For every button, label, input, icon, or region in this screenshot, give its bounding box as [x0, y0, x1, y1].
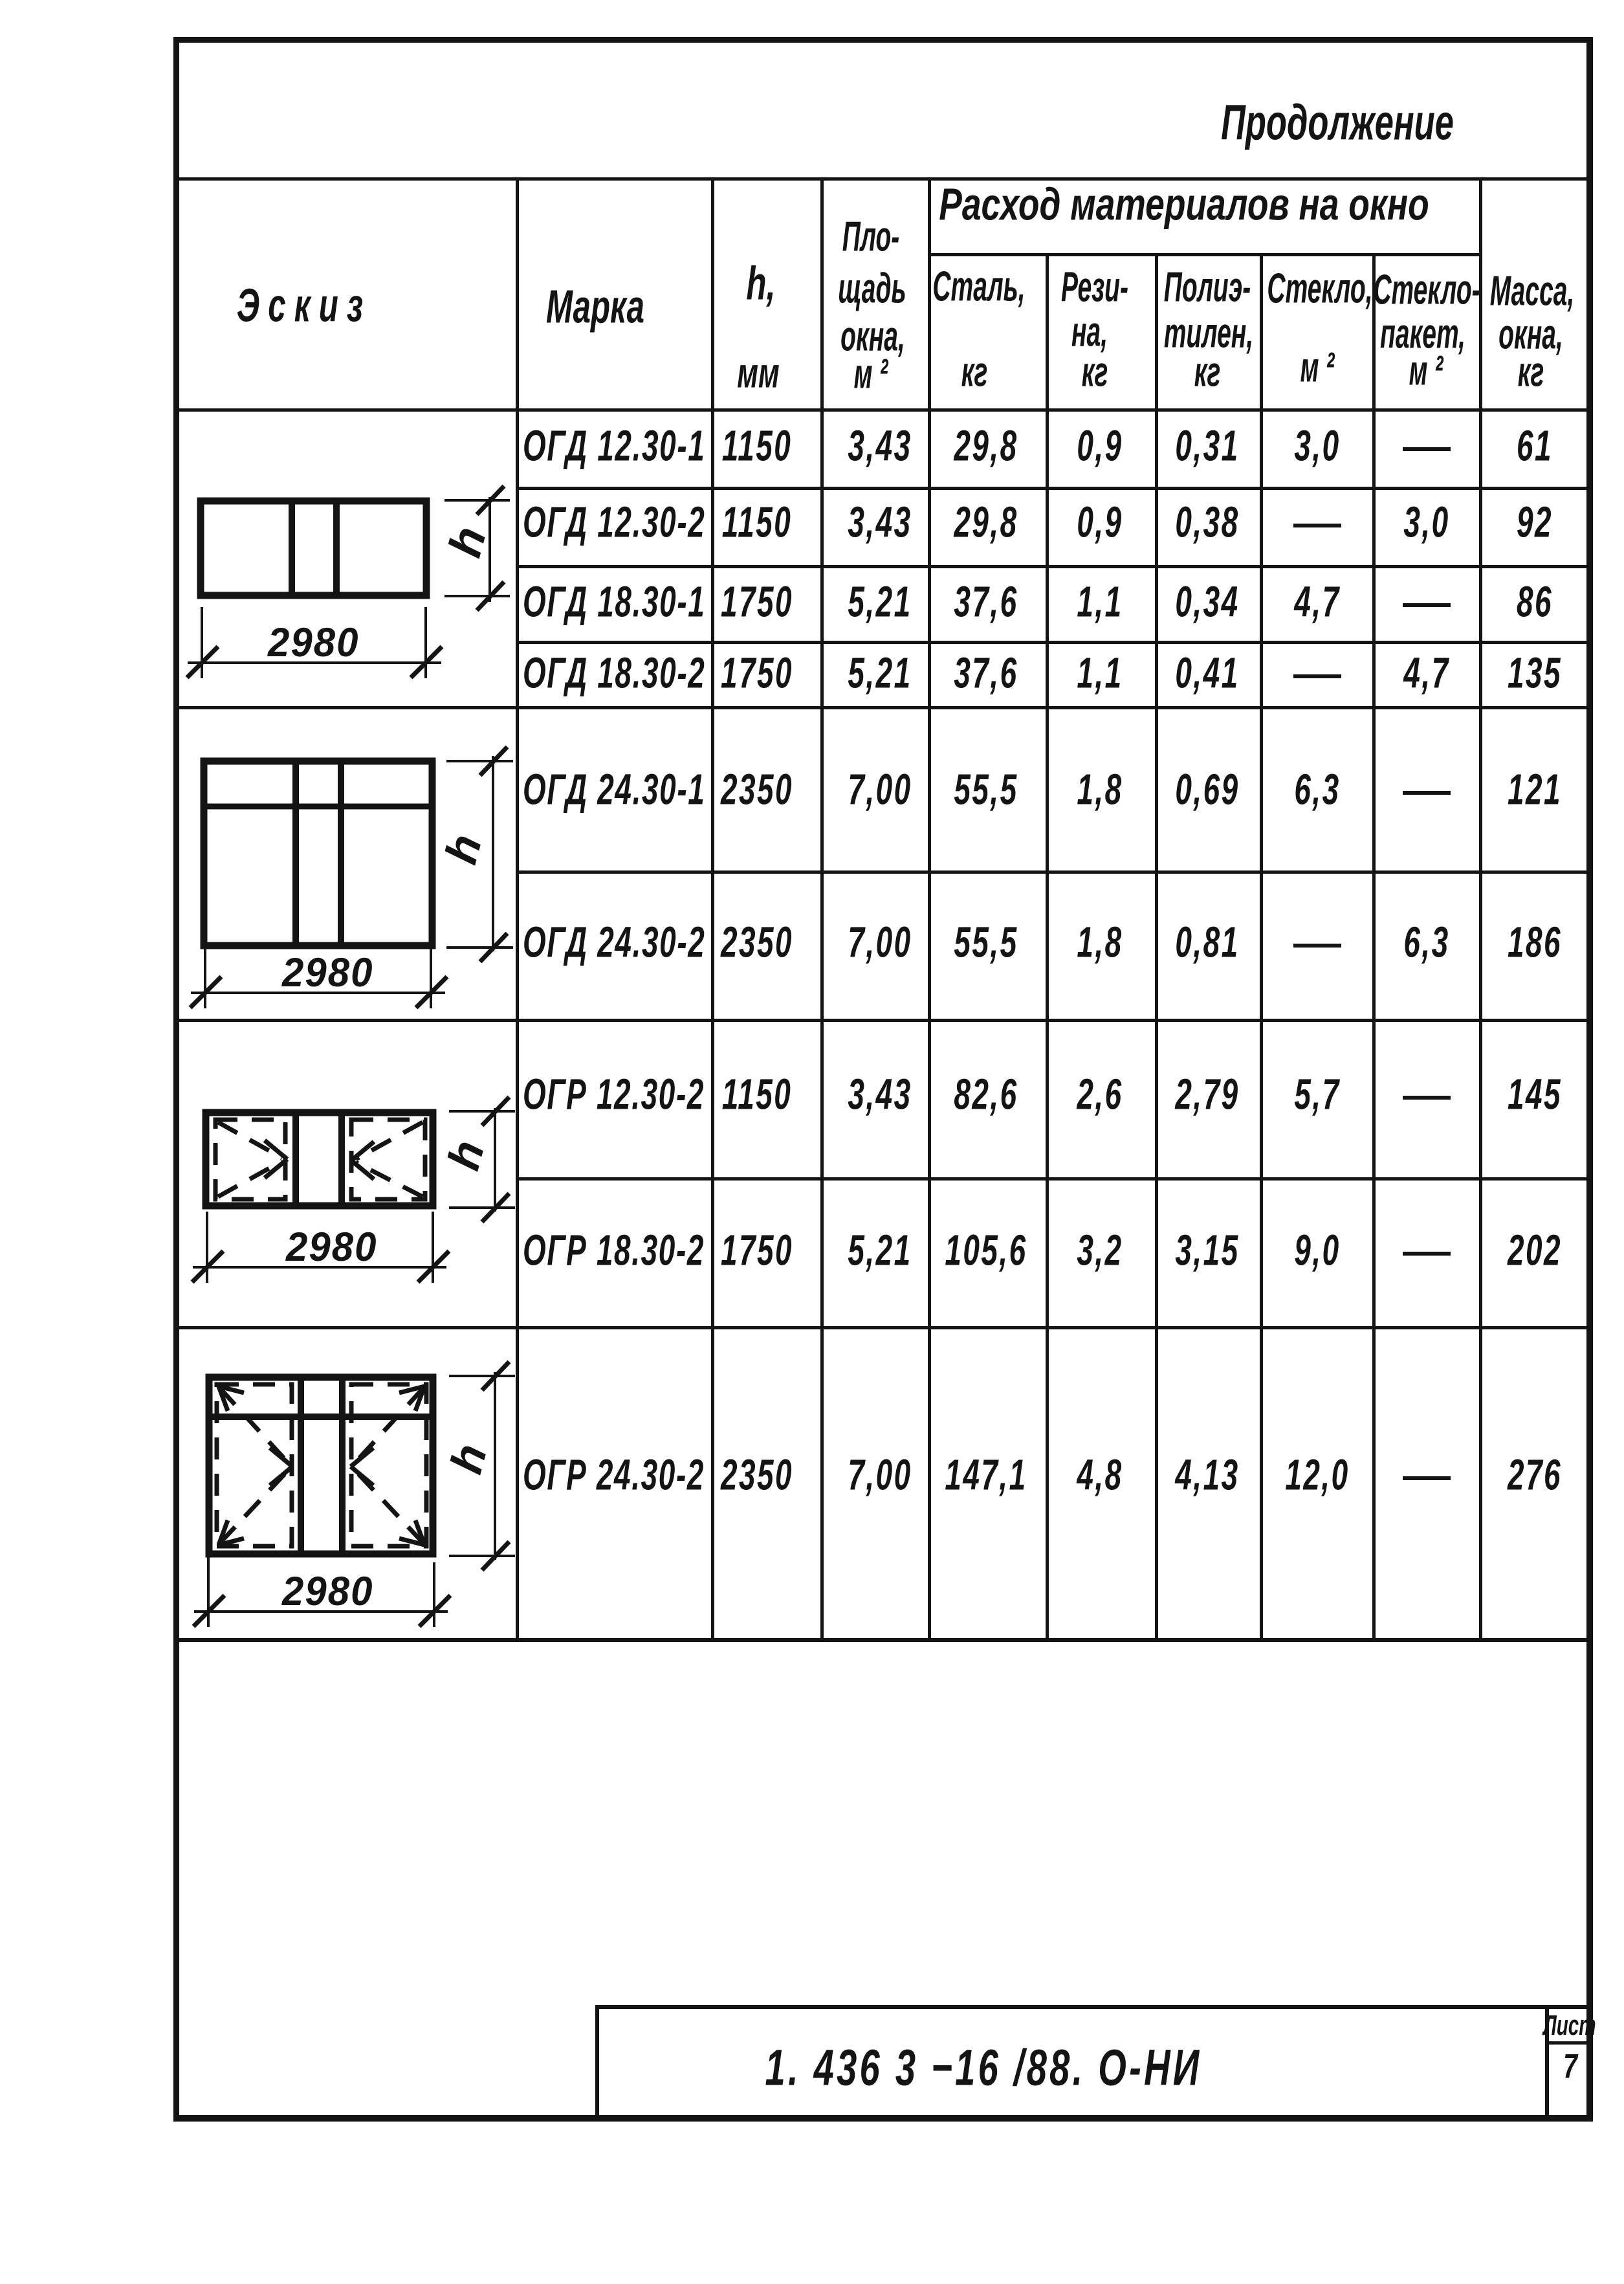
svg-text:h: h: [441, 1439, 496, 1478]
svg-text:2980: 2980: [267, 620, 359, 666]
svg-text:h: h: [438, 1135, 494, 1175]
svg-text:2980: 2980: [281, 1569, 373, 1615]
svg-text:2980: 2980: [285, 1225, 377, 1270]
svg-text:h: h: [435, 829, 491, 869]
svg-text:h: h: [439, 522, 496, 562]
svg-text:2980: 2980: [281, 950, 373, 996]
